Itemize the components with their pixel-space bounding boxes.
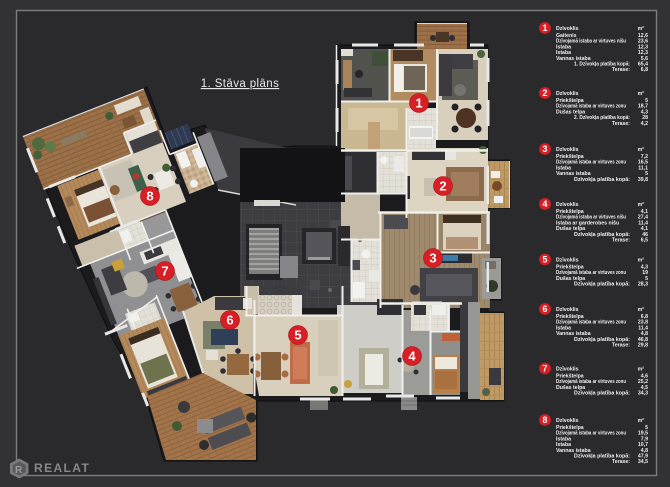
svg-text:5: 5 — [294, 328, 301, 343]
svg-text:m²: m² — [638, 91, 645, 97]
svg-text:m²: m² — [638, 418, 645, 424]
svg-text:4: 4 — [408, 349, 416, 364]
svg-text:Dzīvoklis: Dzīvoklis — [556, 26, 579, 32]
svg-text:m²: m² — [638, 367, 645, 373]
svg-text:Dzīvoklis: Dzīvoklis — [556, 147, 579, 153]
svg-text:Terase:: Terase: — [612, 459, 630, 465]
svg-text:6: 6 — [543, 304, 548, 314]
svg-text:Dzīvokļa platība kopā:: Dzīvokļa platība kopā: — [574, 177, 630, 183]
svg-text:4: 4 — [543, 199, 548, 209]
svg-text:Dzīvoklis: Dzīvoklis — [556, 91, 579, 97]
svg-text:m²: m² — [638, 307, 645, 313]
svg-text:m²: m² — [638, 147, 645, 153]
svg-text:7: 7 — [543, 364, 548, 374]
svg-text:REALAT: REALAT — [34, 461, 90, 475]
svg-text:34,5: 34,5 — [638, 459, 648, 465]
svg-text:6,8: 6,8 — [641, 67, 648, 73]
svg-text:Dzīvoklis: Dzīvoklis — [556, 418, 579, 424]
svg-text:28,3: 28,3 — [638, 282, 648, 288]
svg-text:Terase:: Terase: — [612, 67, 630, 73]
svg-text:7: 7 — [161, 264, 168, 279]
svg-text:Dzīvoklis: Dzīvoklis — [556, 258, 579, 264]
svg-text:1. Stāva plāns: 1. Stāva plāns — [201, 78, 279, 90]
svg-text:2: 2 — [439, 179, 446, 194]
svg-text:3: 3 — [543, 144, 548, 154]
svg-text:5: 5 — [543, 255, 548, 265]
svg-text:Terase:: Terase: — [612, 343, 630, 349]
svg-text:3: 3 — [429, 251, 436, 266]
svg-text:m²: m² — [638, 202, 645, 208]
svg-text:39,8: 39,8 — [638, 177, 648, 183]
svg-text:4,2: 4,2 — [641, 121, 648, 127]
svg-text:1: 1 — [543, 23, 548, 33]
svg-text:Dzīvoklis: Dzīvoklis — [556, 367, 579, 373]
svg-text:Dzīvoklis: Dzīvoklis — [556, 202, 579, 208]
svg-text:Dzīvokļa platība kopā:: Dzīvokļa platība kopā: — [574, 282, 630, 288]
svg-text:m²: m² — [638, 26, 645, 32]
svg-text:6: 6 — [226, 313, 233, 328]
svg-text:R: R — [15, 465, 23, 476]
svg-text:34,3: 34,3 — [638, 391, 648, 397]
svg-text:29,8: 29,8 — [638, 343, 648, 349]
svg-text:1: 1 — [415, 96, 422, 111]
svg-text:m²: m² — [638, 258, 645, 264]
svg-text:8: 8 — [146, 189, 153, 204]
svg-text:Dzīvokļa platība kopā:: Dzīvokļa platība kopā: — [574, 391, 630, 397]
svg-text:Terase:: Terase: — [612, 121, 630, 127]
svg-text:8: 8 — [543, 415, 548, 425]
svg-text:6,5: 6,5 — [641, 238, 648, 244]
svg-text:Dzīvoklis: Dzīvoklis — [556, 307, 579, 313]
svg-text:Terase:: Terase: — [612, 238, 630, 244]
svg-text:2: 2 — [543, 88, 548, 98]
